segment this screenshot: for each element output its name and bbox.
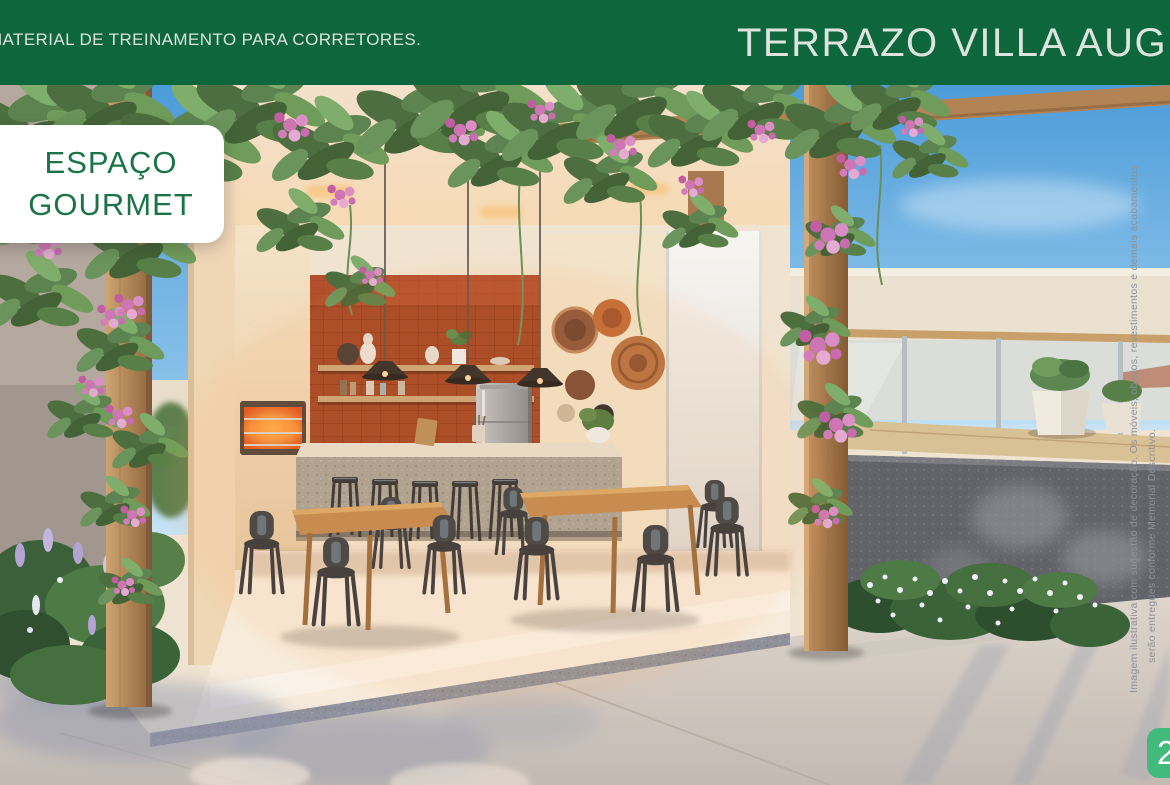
card-line-2: GOURMET: [10, 184, 193, 226]
espaco-gourmet-card: ESPAÇO GOURMET: [0, 125, 224, 243]
card-line-1: ESPAÇO: [27, 142, 178, 184]
disclaimer-line-1: Imagem ilustrativa com sugestão de decor…: [1127, 165, 1141, 693]
disclaimer-line-2: serão entregues conforme Memorial Descri…: [1145, 429, 1159, 663]
page-number-badge: 2: [1147, 728, 1170, 778]
training-material-label: MATERIAL DE TREINAMENTO PARA CORRETORES.: [0, 30, 421, 50]
project-title: TERRAZO VILLA AUGUSTA: [737, 21, 1170, 66]
interior-glow: [170, 265, 830, 705]
header-bar: MATERIAL DE TREINAMENTO PARA CORRETORES.…: [0, 0, 1170, 85]
slide-espaco-gourmet: MATERIAL DE TREINAMENTO PARA CORRETORES.…: [0, 0, 1170, 785]
